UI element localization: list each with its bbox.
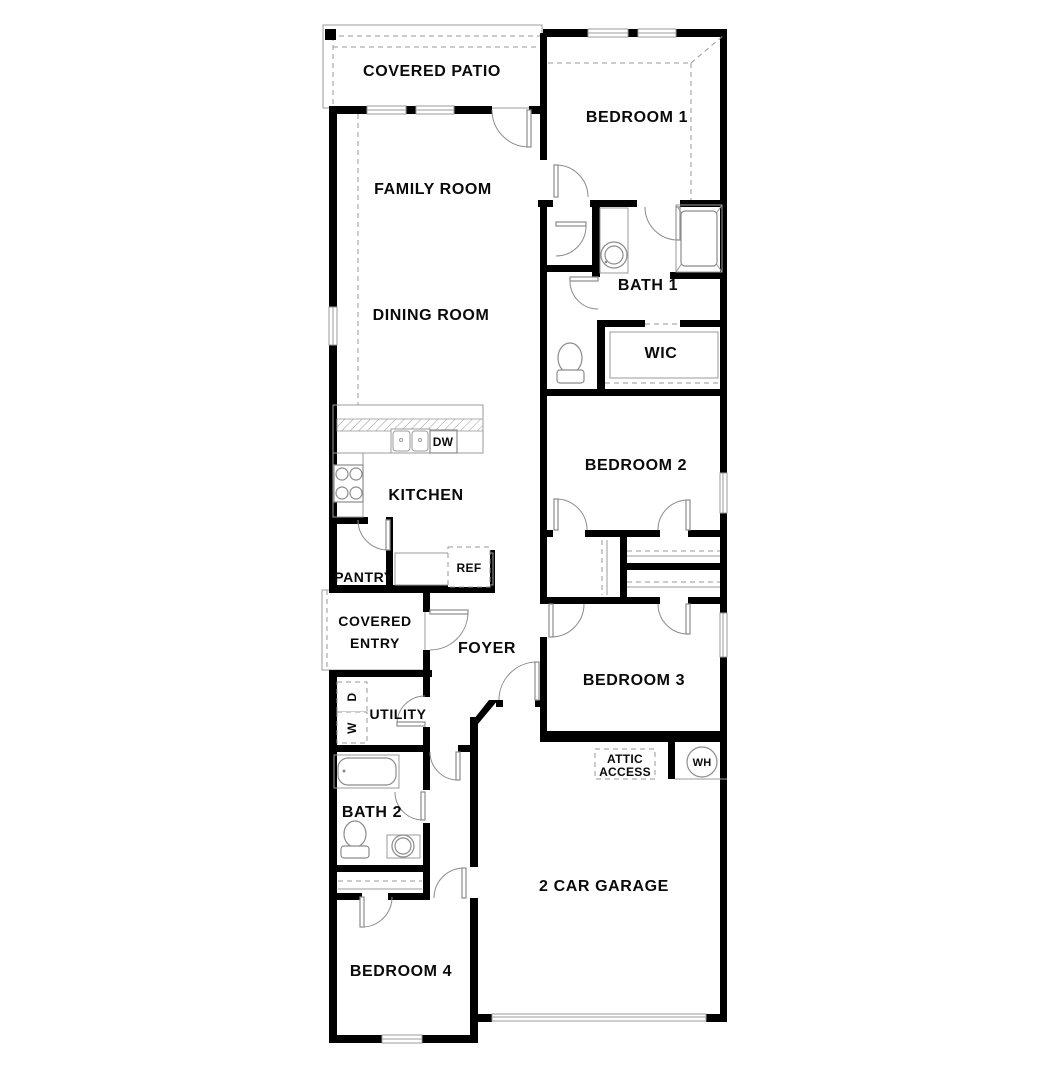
patio-door	[492, 110, 531, 147]
bedroom1-door	[554, 165, 588, 197]
family-room-window	[367, 106, 406, 114]
bath1-label: BATH 1	[618, 277, 678, 294]
bath1-sink	[600, 208, 628, 273]
patio-post	[325, 29, 336, 40]
bedroom2-closet-door	[658, 500, 690, 530]
dining-window	[329, 307, 337, 345]
bedroom4-window	[382, 1035, 422, 1043]
bedroom3-window	[720, 613, 727, 657]
utility-label: UTILITY	[369, 706, 426, 722]
bedroom3-closet-door	[658, 604, 690, 634]
covered-entry-outline	[322, 590, 425, 670]
foyer-label: FOYER	[458, 640, 516, 657]
family-room-label: FAMILY ROOM	[374, 181, 492, 198]
bedroom2-label: BEDROOM 2	[585, 457, 687, 474]
floor-plan-drawing: COVERED PATIO BEDROOM 1 FAMILY ROOM BATH…	[0, 0, 1050, 1070]
bedroom1-window	[638, 29, 676, 37]
toilet-room-door	[570, 277, 598, 309]
bedroom1-closet-door	[556, 222, 586, 256]
kitchen-label: KITCHEN	[388, 487, 463, 504]
bath2-sink	[387, 835, 420, 858]
floor-plan-page: COVERED PATIO BEDROOM 1 FAMILY ROOM BATH…	[0, 0, 1050, 1070]
garage-label: 2 CAR GARAGE	[539, 878, 669, 895]
bath2-toilet	[341, 821, 369, 858]
washer-label: W	[345, 722, 359, 734]
stove	[334, 465, 363, 502]
water-heater-label: WH	[693, 757, 712, 769]
bedroom4-door	[360, 897, 392, 927]
bath2-label: BATH 2	[342, 804, 402, 821]
shower	[676, 205, 722, 272]
family-room-window	[416, 106, 454, 114]
bedroom4-label: BEDROOM 4	[350, 963, 452, 980]
covered-entry-label-2: ENTRY	[350, 635, 400, 651]
hall-door	[430, 752, 460, 780]
bedroom1-label: BEDROOM 1	[586, 109, 688, 126]
bedroom3-label: BEDROOM 3	[583, 672, 685, 689]
bedroom1-window	[588, 29, 628, 37]
refrigerator-label: REF	[457, 561, 482, 575]
attic-access-label-2: ACCESS	[599, 765, 651, 779]
garage-door	[492, 1014, 706, 1021]
bedroom2-door	[554, 499, 587, 530]
bedroom3-door	[549, 604, 584, 637]
dining-room-label: DINING ROOM	[373, 307, 490, 324]
bath1-toilet	[557, 343, 584, 383]
pantry-door	[358, 520, 390, 550]
covered-entry-label-1: COVERED	[338, 613, 411, 629]
dishwasher-label: DW	[433, 435, 454, 449]
attic-access-label-1: ATTIC	[607, 752, 643, 766]
angled-wall	[470, 700, 498, 724]
garage-entry-door	[434, 868, 466, 898]
doors	[358, 110, 690, 927]
foyer-hall-door	[499, 662, 539, 700]
bathtub	[334, 755, 399, 788]
bedroom4-closet-shelf	[338, 881, 422, 889]
kitchen-sink	[391, 429, 430, 453]
bath1-fixtures	[557, 205, 722, 383]
bath1-door	[645, 207, 680, 240]
bedroom2-window	[720, 473, 727, 513]
covered-patio-label: COVERED PATIO	[363, 63, 501, 80]
dryer-label: D	[345, 692, 359, 701]
pantry-label: PANTRY	[334, 569, 394, 585]
wic-label: WIC	[645, 345, 678, 362]
